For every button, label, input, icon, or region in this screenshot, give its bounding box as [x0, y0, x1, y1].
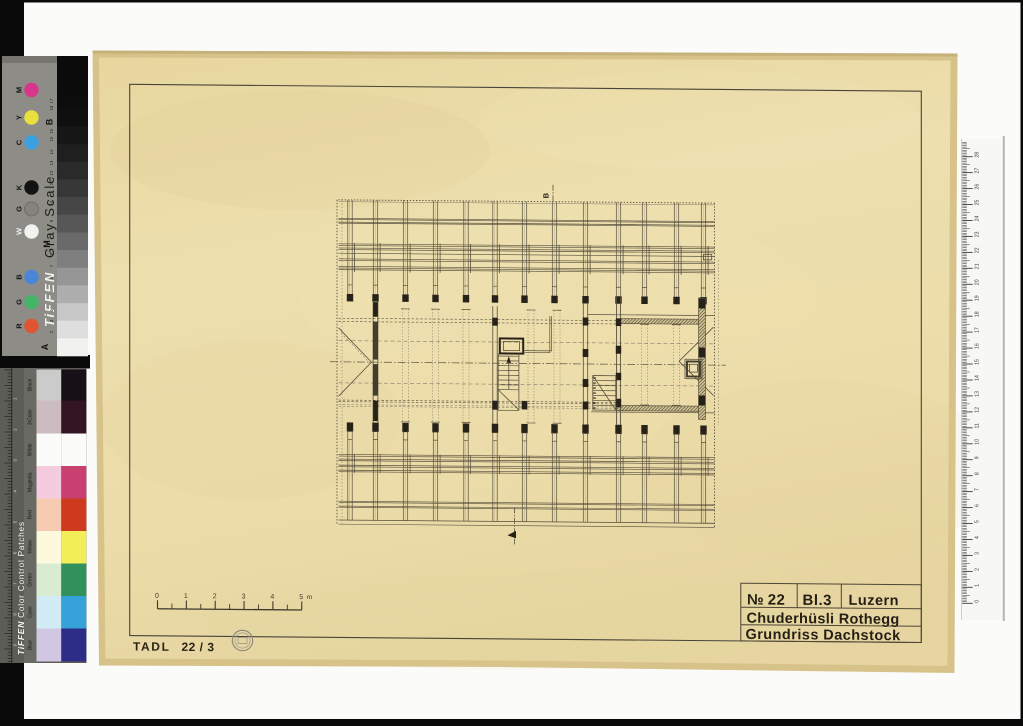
svg-text:Chuderhüsli Rothegg: Chuderhüsli Rothegg: [747, 611, 900, 628]
svg-text:R: R: [14, 323, 23, 329]
svg-text:№ 22: № 22: [747, 591, 785, 608]
svg-text:Y: Y: [14, 115, 23, 120]
svg-text:18: 18: [975, 311, 981, 317]
svg-text:B: B: [542, 192, 551, 198]
svg-text:2: 2: [213, 593, 217, 600]
svg-text:W: W: [14, 227, 23, 235]
svg-text:A: A: [40, 343, 50, 350]
svg-text:12: 12: [975, 407, 981, 413]
svg-text:3/Color: 3/Color: [28, 409, 34, 425]
svg-text:Blue: Blue: [28, 640, 34, 650]
svg-text:20: 20: [975, 279, 981, 285]
svg-text:14: 14: [975, 375, 981, 381]
svg-text:19: 19: [975, 295, 981, 301]
svg-text:24: 24: [975, 216, 981, 222]
svg-text:10: 10: [975, 439, 981, 445]
svg-text:13: 13: [49, 160, 54, 165]
svg-text:C: C: [14, 139, 23, 145]
svg-text:26: 26: [975, 184, 981, 190]
svg-text:Green: Green: [28, 573, 34, 587]
svg-text:27: 27: [975, 168, 981, 174]
svg-text:TADL: TADL: [133, 640, 171, 654]
svg-text:M: M: [14, 87, 23, 93]
svg-text:12: 12: [49, 170, 54, 175]
svg-text:Cyan: Cyan: [28, 606, 34, 618]
svg-text:Grundriss Dachstock: Grundriss Dachstock: [746, 627, 902, 644]
svg-text:White: White: [28, 443, 34, 456]
svg-text:15: 15: [975, 359, 981, 365]
svg-text:4: 4: [270, 594, 274, 601]
svg-text:Magenta: Magenta: [28, 472, 34, 492]
svg-text:K: K: [14, 184, 23, 190]
svg-text:10: 10: [49, 200, 54, 205]
svg-text:25: 25: [975, 200, 981, 206]
svg-text:B: B: [14, 274, 23, 280]
svg-text:3: 3: [242, 593, 246, 600]
svg-text:7: 7: [975, 488, 981, 491]
svg-text:21: 21: [975, 263, 981, 269]
svg-text:22: 22: [975, 247, 981, 253]
svg-text:G: G: [14, 206, 23, 212]
svg-text:16: 16: [49, 128, 54, 133]
svg-text:Luzern: Luzern: [849, 593, 900, 609]
svg-text:17: 17: [975, 327, 981, 333]
svg-text:8: 8: [975, 472, 981, 475]
svg-text:17: 17: [49, 98, 54, 103]
svg-text:23: 23: [975, 231, 981, 237]
svg-text:6: 6: [975, 504, 981, 507]
svg-text:15: 15: [49, 136, 54, 141]
svg-text:18: 18: [49, 105, 54, 110]
svg-text:G: G: [14, 299, 23, 305]
svg-text:5: 5: [299, 594, 303, 601]
svg-text:Yellow: Yellow: [28, 540, 34, 555]
svg-text:11: 11: [975, 423, 981, 428]
svg-text:3: 3: [975, 552, 981, 555]
svg-text:1: 1: [975, 584, 981, 587]
svg-text:Bl.3: Bl.3: [803, 592, 833, 609]
svg-text:Red: Red: [28, 510, 34, 519]
svg-text:9: 9: [975, 456, 981, 459]
svg-text:11: 11: [49, 180, 54, 185]
svg-text:1: 1: [184, 593, 188, 600]
svg-text:16: 16: [975, 343, 981, 349]
svg-text:0: 0: [155, 593, 159, 600]
svg-text:B: B: [45, 118, 55, 125]
svg-text:4: 4: [975, 536, 981, 539]
svg-text:Black: Black: [28, 378, 34, 391]
svg-text:m: m: [307, 594, 312, 601]
svg-text:2: 2: [975, 568, 981, 571]
svg-text:5: 5: [975, 520, 981, 523]
svg-text:0: 0: [975, 600, 981, 603]
svg-text:13: 13: [975, 391, 981, 397]
svg-text:14: 14: [49, 149, 54, 154]
svg-text:TiFFEN Color Control Patches: TiFFEN Color Control Patches: [16, 521, 26, 655]
svg-text:22 / 3: 22 / 3: [182, 640, 215, 654]
svg-text:28: 28: [975, 152, 981, 158]
svg-text:M: M: [42, 240, 52, 248]
